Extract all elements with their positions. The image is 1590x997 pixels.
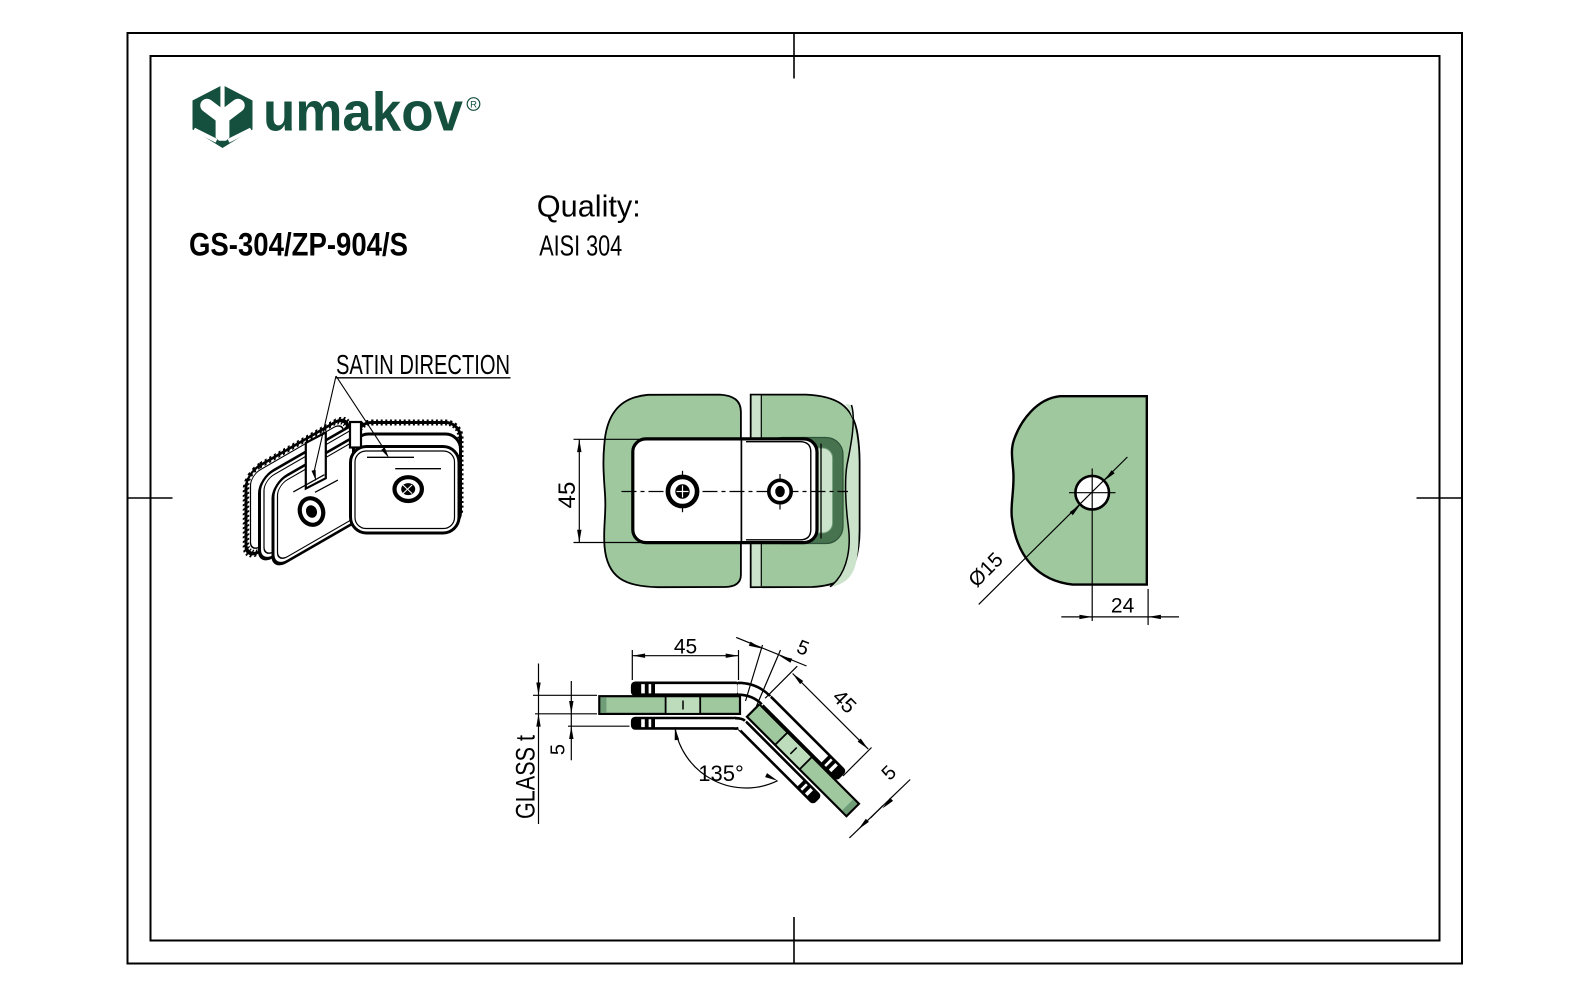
svg-text:Quality:: Quality: bbox=[537, 189, 641, 224]
svg-text:24: 24 bbox=[1111, 595, 1135, 618]
svg-text:umakov: umakov bbox=[263, 81, 463, 143]
svg-text:R: R bbox=[470, 99, 477, 110]
svg-text:5: 5 bbox=[548, 744, 570, 755]
svg-text:SATIN DIRECTION: SATIN DIRECTION bbox=[336, 349, 510, 380]
svg-text:AISI 304: AISI 304 bbox=[539, 231, 622, 263]
svg-text:GS-304/ZP-904/S: GS-304/ZP-904/S bbox=[189, 227, 408, 263]
svg-text:135°: 135° bbox=[698, 761, 744, 786]
svg-text:45: 45 bbox=[674, 636, 697, 659]
svg-text:45: 45 bbox=[554, 482, 581, 509]
svg-text:GLASS t: GLASS t bbox=[510, 735, 540, 819]
